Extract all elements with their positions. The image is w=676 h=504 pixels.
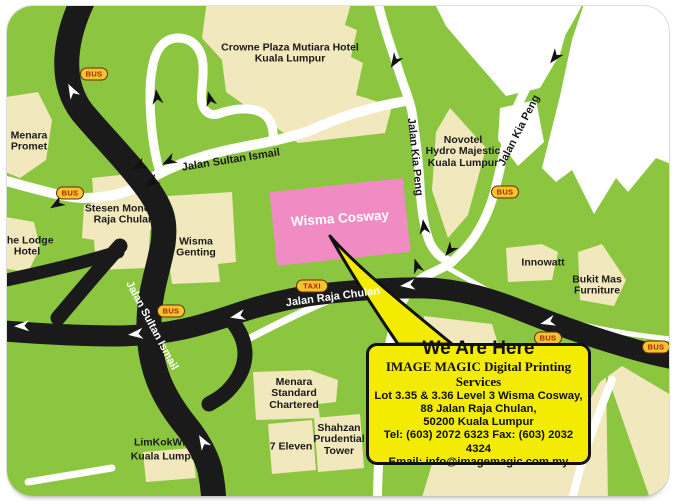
label-shahzan-prudential: Shahzan Prudential Tower bbox=[313, 423, 364, 457]
label-menara-promet: Menara Promet bbox=[11, 131, 48, 154]
label-stesen-monorel: Stesen Monorel Raja Chulan bbox=[85, 204, 163, 227]
map-canvas: Crowne Plaza Mutiara Hotel Kuala Lumpur … bbox=[7, 6, 669, 496]
callout-address-line2: 88 Jalan Raja Chulan, bbox=[420, 403, 536, 416]
bus-stop-marker: BUS bbox=[80, 68, 108, 81]
callout-email: Email: info@imagemagic.com.my bbox=[389, 456, 569, 469]
bus-stop-marker: BUS bbox=[491, 186, 519, 199]
map-rounded-frame: Crowne Plaza Mutiara Hotel Kuala Lumpur … bbox=[7, 6, 669, 496]
taxi-stand-marker: TAXI bbox=[296, 280, 328, 293]
label-novotel: Novotel Hydro Majestic Kuala Lumpur bbox=[426, 135, 501, 169]
bus-stop-marker: BUS bbox=[56, 187, 84, 200]
callout-tel-fax: Tel: (603) 2072 6323 Fax: (603) 2032 432… bbox=[373, 429, 584, 455]
label-bukit-mas: Bukit Mas Furniture bbox=[572, 275, 622, 298]
label-seven-eleven: 7 Eleven bbox=[270, 441, 313, 452]
bus-stop-marker: BUS bbox=[157, 305, 185, 318]
callout-company: IMAGE MAGIC Digital Printing Services bbox=[373, 360, 584, 390]
label-crowne-plaza: Crowne Plaza Mutiara Hotel Kuala Lumpur bbox=[221, 43, 359, 66]
callout-address-line3: 50200 Kuala Lumpur bbox=[423, 416, 534, 429]
callout-address-line1: Lot 3.35 & 3.36 Level 3 Wisma Cosway, bbox=[374, 390, 582, 403]
label-innowatt: Innowatt bbox=[521, 257, 564, 268]
label-menara-standard-chartered: Menara Standard Chartered bbox=[269, 377, 319, 411]
label-wisma-genting: Wisma Genting bbox=[176, 237, 216, 260]
label-lodge-hotel: The Lodge Hotel bbox=[7, 236, 54, 259]
callout-title: We Are Here bbox=[423, 339, 535, 359]
we-are-here-callout: We Are Here IMAGE MAGIC Digital Printing… bbox=[366, 343, 591, 465]
bus-stop-marker: BUS bbox=[642, 341, 669, 354]
label-limkokwing: LimKokWing Kuala Lumpur bbox=[131, 436, 202, 463]
location-map-page: Crowne Plaza Mutiara Hotel Kuala Lumpur … bbox=[0, 0, 676, 504]
